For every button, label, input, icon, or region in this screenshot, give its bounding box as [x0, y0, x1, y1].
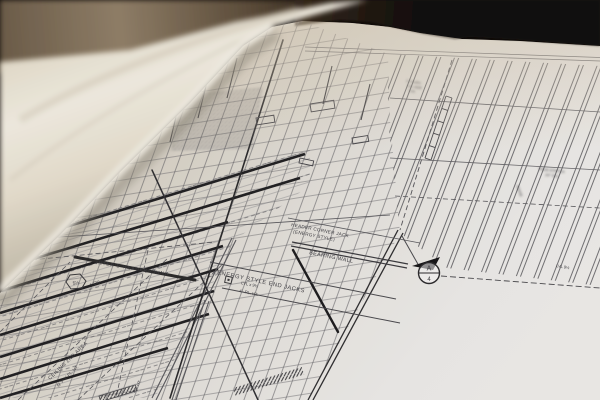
vignette-overlay: [0, 0, 600, 400]
blueprint-photo: A 4 5½ HEADER CORNER JACK (ENERGY STYLE)…: [0, 0, 600, 400]
photo-blueprint-scene: A 4 5½ HEADER CORNER JACK (ENERGY STYLE)…: [0, 0, 600, 400]
